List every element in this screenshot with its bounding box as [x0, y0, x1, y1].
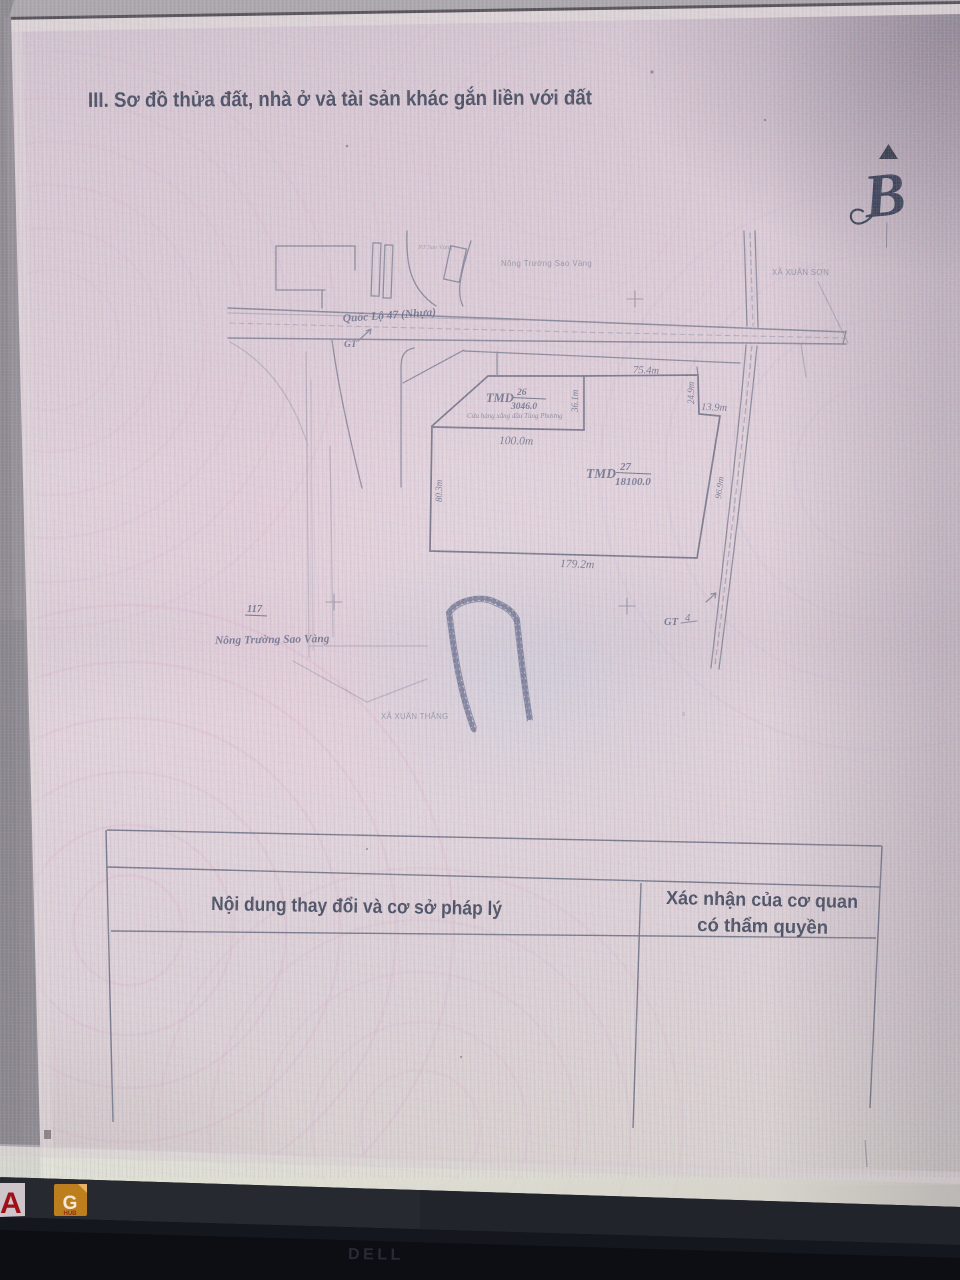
svg-text:HUB: HUB — [64, 1211, 78, 1217]
svg-text:A: A — [0, 1187, 22, 1220]
svg-text:DELL: DELL — [348, 1246, 404, 1264]
